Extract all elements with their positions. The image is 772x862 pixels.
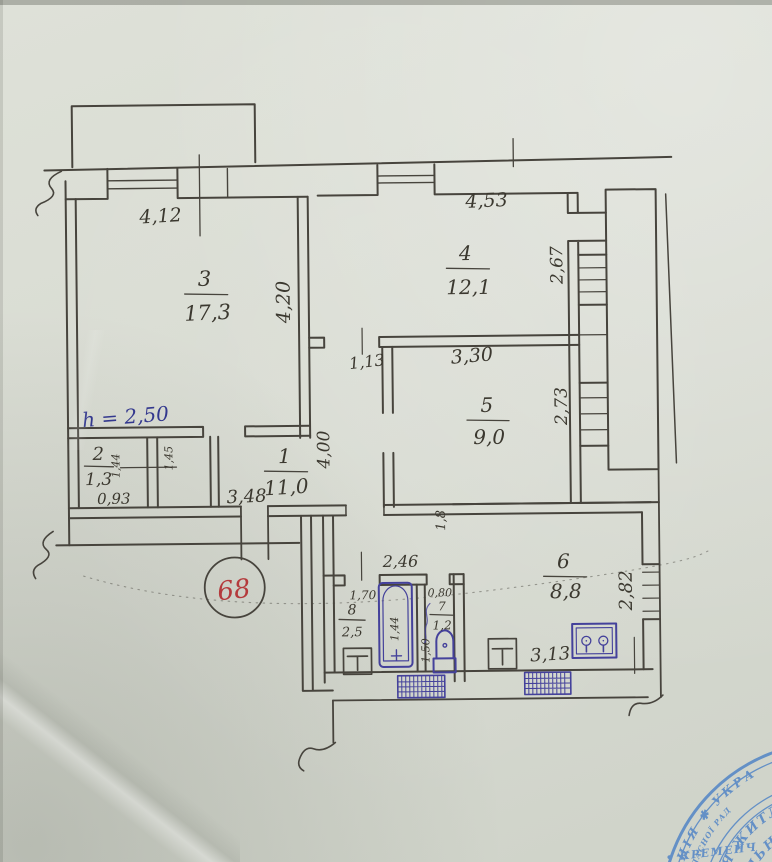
- dim-hall-width: 3,48: [226, 486, 267, 509]
- room3-area: 17,3: [184, 300, 232, 326]
- dim-tick: [199, 155, 200, 236]
- dim-closet-depth: 1,44: [109, 453, 122, 478]
- balcony-outline: [72, 104, 256, 167]
- room6-number: 6: [557, 549, 570, 573]
- room8-area: 2,5: [341, 625, 363, 640]
- dim-room3-depth: 4,20: [273, 281, 295, 325]
- room4-window: [377, 175, 434, 183]
- stove-knobs: [586, 641, 603, 652]
- room4-top-wall: [317, 163, 577, 196]
- paper-crease: [0, 330, 180, 450]
- room5-number: 5: [480, 393, 493, 417]
- dim-room4-depth: 2,67: [547, 246, 567, 285]
- dim-kitchen-width: 3,13: [530, 643, 571, 666]
- room3-number: 3: [198, 267, 212, 291]
- dim-closet-width: 0,93: [97, 490, 131, 508]
- dim-room3-width: 4,12: [138, 204, 183, 229]
- kitchen-sink: [488, 639, 516, 669]
- vestibule-jambs: [346, 505, 384, 515]
- bath-sink: [343, 648, 371, 674]
- stove: [572, 624, 616, 658]
- dim-room4-width: 4,53: [464, 189, 508, 213]
- room4-area: 12,1: [446, 275, 491, 299]
- toilet-bowl: [436, 630, 453, 658]
- room6-area: 8,8: [550, 579, 582, 603]
- room7-area: 1,2: [433, 618, 452, 632]
- scan-edge: [0, 0, 3, 862]
- room7-number: 7: [438, 599, 446, 613]
- stamp-city-text: • КРЕМЕНЧ: [665, 840, 758, 862]
- dim-room5-depth: 2,73: [552, 387, 572, 426]
- paper-crease: [0, 652, 240, 862]
- bath-left-wall: [323, 515, 335, 682]
- dim-bath-width: 1,70: [349, 588, 376, 602]
- scanned-floor-plan-page: 4,12 3 17,3 4,20 4,53 4 12,1 2,67 3,30 5…: [0, 0, 772, 862]
- bath-top-wall: [324, 574, 464, 585]
- loggia-outer-edge: [666, 194, 677, 463]
- corridor-bottom-wall: [69, 502, 651, 518]
- scan-edge: [0, 0, 772, 5]
- room2-area: 1,3: [85, 470, 112, 490]
- toilet-detail: [443, 644, 447, 648]
- room1-number: 1: [278, 444, 291, 468]
- dim-wc-width: 0,80: [427, 586, 452, 599]
- dim-bath-depth: 1,44: [388, 617, 401, 642]
- right-wall: [568, 194, 609, 503]
- room5-left-wall: [382, 347, 394, 507]
- room3-top-wall: [65, 167, 307, 200]
- apartment-number-group: 68: [204, 557, 265, 618]
- vent-grate-grid: [398, 675, 445, 697]
- apartment-number: 68: [216, 574, 252, 608]
- room5-loggia-window-bars: [580, 398, 608, 430]
- dim-vestibule-width: 2,46: [382, 552, 419, 571]
- top-outer-wall: [44, 157, 671, 171]
- entrance-door-jambs: [241, 506, 269, 559]
- dim-hall-length: 4,00: [314, 430, 334, 469]
- right-lower-outer-wall: [659, 469, 661, 697]
- dim-room5-width: 3,30: [450, 343, 494, 368]
- landing-outer-wall: [56, 543, 299, 546]
- room5-area: 9,0: [473, 425, 505, 449]
- room3-right-wall: [298, 197, 311, 438]
- kitchen-window-bars: [643, 572, 660, 611]
- room3-window: [107, 169, 227, 199]
- room4-room5-divider: [309, 335, 579, 348]
- bottom-outer-line: [333, 697, 648, 700]
- dim-hall-jog: 1,13: [348, 350, 386, 373]
- room8-number: 8: [347, 602, 356, 618]
- room4-loggia-window-bars: [578, 268, 606, 292]
- room1-area: 11,0: [263, 474, 309, 501]
- official-stamp: ТРАЦІЯ ✱ УКРА ОБЛАСНОЇ РАД ІННЯ ЖИТЛОВО …: [662, 742, 772, 862]
- break-squiggle: [298, 742, 335, 770]
- bathtub-drain: [391, 650, 401, 661]
- break-squiggle: [35, 171, 61, 215]
- dim-wc-depth: 1,50: [419, 638, 432, 663]
- room4-number: 4: [458, 241, 472, 265]
- dim-kitchen-depth: 2,82: [616, 570, 637, 611]
- vent-grate-grid: [525, 672, 571, 694]
- break-squiggle: [33, 531, 54, 578]
- dim-hall-pass: 1,8: [434, 510, 449, 531]
- loggia-outline: [606, 189, 659, 470]
